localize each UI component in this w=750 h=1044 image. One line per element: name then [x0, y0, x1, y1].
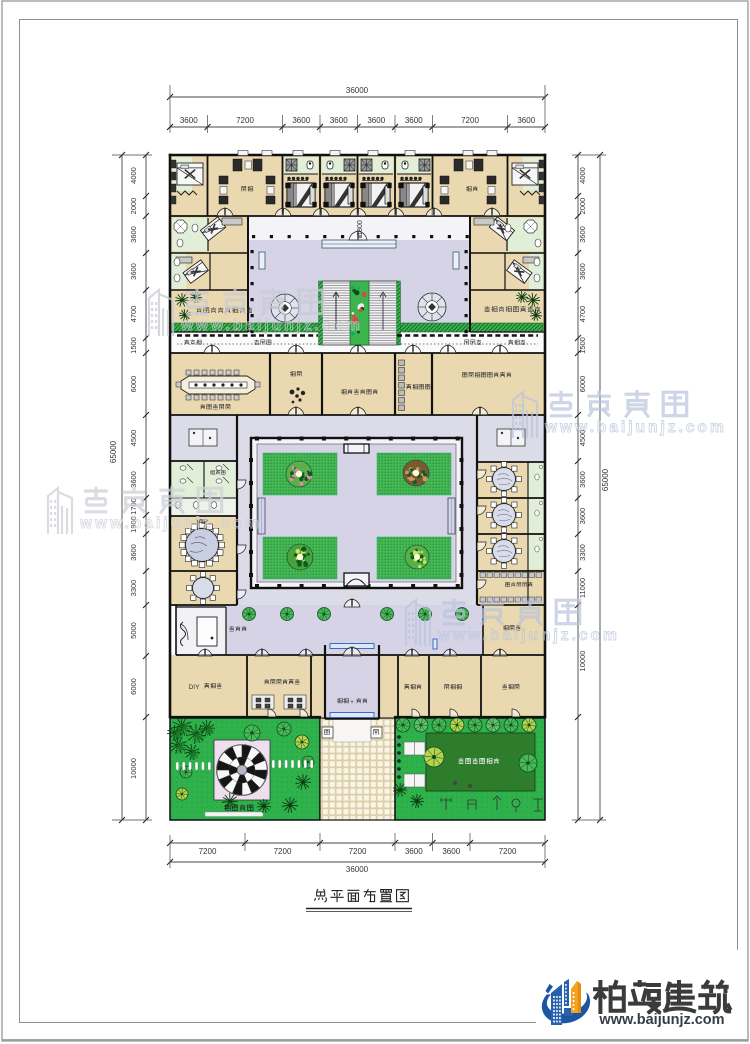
svg-text:1500: 1500	[578, 337, 587, 354]
svg-text:3600: 3600	[442, 847, 460, 856]
svg-text:7200: 7200	[349, 847, 367, 856]
svg-text:7200: 7200	[199, 847, 217, 856]
svg-text:3300: 3300	[129, 580, 138, 597]
svg-text:3600: 3600	[578, 471, 587, 488]
svg-text:DIY: DIY	[189, 684, 201, 691]
svg-text:10000: 10000	[578, 651, 587, 672]
svg-text:10000: 10000	[129, 758, 138, 779]
svg-text:7200: 7200	[274, 847, 292, 856]
svg-text:www.baijunjz.com: www.baijunjz.com	[437, 627, 620, 644]
svg-text:+: +	[350, 700, 354, 706]
svg-text:3600: 3600	[129, 226, 138, 243]
svg-text:11000: 11000	[578, 578, 587, 598]
svg-text:36000: 36000	[346, 86, 369, 95]
svg-text:3600: 3600	[405, 116, 423, 125]
svg-text:1500: 1500	[129, 337, 138, 354]
svg-text:www.baijunjz.com: www.baijunjz.com	[544, 419, 727, 436]
svg-text:3600: 3600	[129, 263, 138, 280]
svg-text:1800: 1800	[357, 220, 364, 236]
svg-text:7200: 7200	[236, 116, 254, 125]
svg-text:4700: 4700	[129, 306, 138, 323]
svg-text:3600: 3600	[129, 471, 138, 488]
svg-text:6000: 6000	[129, 678, 138, 695]
svg-text:3300: 3300	[578, 544, 587, 561]
svg-text:3600: 3600	[367, 116, 385, 125]
svg-text:3600: 3600	[180, 116, 198, 125]
svg-text:4000: 4000	[578, 167, 587, 184]
svg-text:65000: 65000	[601, 468, 610, 491]
svg-text:3600: 3600	[578, 226, 587, 243]
svg-text:4500: 4500	[129, 430, 138, 447]
svg-text:7200: 7200	[461, 116, 479, 125]
svg-text:3600: 3600	[330, 116, 348, 125]
svg-text:3600: 3600	[578, 263, 587, 280]
svg-text:3600: 3600	[578, 508, 587, 525]
svg-text:www.baijunjz.com: www.baijunjz.com	[180, 317, 363, 334]
svg-text:4000: 4000	[129, 167, 138, 184]
svg-text:36000: 36000	[346, 865, 369, 874]
svg-text:3600: 3600	[405, 847, 423, 856]
svg-text:2000: 2000	[129, 198, 138, 215]
svg-text:65000: 65000	[109, 440, 118, 463]
svg-text:www.baijunjz.com: www.baijunjz.com	[79, 515, 262, 532]
svg-text:7200: 7200	[499, 847, 517, 856]
svg-text:4700: 4700	[578, 306, 587, 323]
svg-text:3600: 3600	[292, 116, 310, 125]
svg-text:6000: 6000	[578, 376, 587, 393]
svg-text:3600: 3600	[517, 116, 535, 125]
svg-text:www.baijunjz.com: www.baijunjz.com	[598, 1012, 724, 1028]
svg-text:6000: 6000	[129, 376, 138, 393]
svg-text:5000: 5000	[129, 622, 138, 639]
svg-text:3600: 3600	[129, 544, 138, 561]
svg-text:2000: 2000	[578, 198, 587, 215]
